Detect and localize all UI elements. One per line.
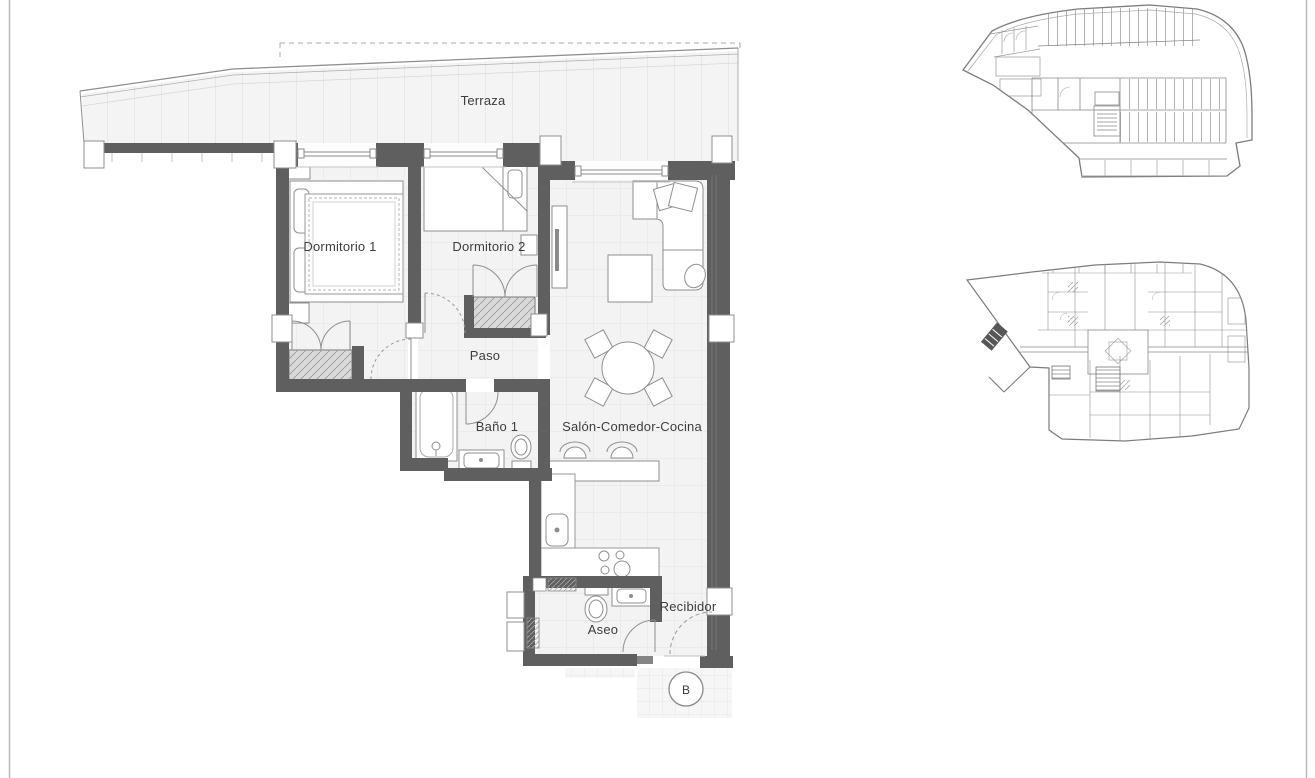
pillar [709,315,734,342]
washbasin-icon [459,450,504,471]
parking-stalls [1040,8,1198,46]
stair-core [1096,367,1120,391]
label-bano-1: Baño 1 [476,419,518,434]
parking-stalls [1120,112,1226,142]
section-marker-b: B [669,672,703,706]
label-terraza: Terraza [461,93,506,108]
shaft [507,622,524,651]
label-salon: Salón-Comedor-Cocina [562,419,702,434]
pillar [531,314,547,336]
shaft [507,592,524,618]
pillar [540,136,561,165]
pillar [274,141,296,168]
site-plan-garage [963,5,1252,177]
bedroom-divider-wall [408,158,421,325]
tv-unit-icon [552,206,567,288]
terrace-railing-ticks [112,153,262,162]
window-salon [572,161,670,182]
label-dormitorio-2: Dormitorio 2 [452,239,525,254]
label-aseo: Aseo [588,622,618,637]
floor-plan-page: B Terraza Dormitorio 1 Dormitorio 2 Paso… [0,0,1315,778]
pillar [272,315,292,342]
entry-landing [565,668,732,718]
site-plan-typical-floor [967,262,1249,441]
washbasin-icon [612,585,651,606]
bathtub-icon [416,385,457,461]
label-paso: Paso [470,348,500,363]
toilet-icon [585,586,608,622]
entry-threshold [637,656,653,664]
west-wall [276,143,289,392]
door-jamb [406,323,423,338]
stairs [1052,366,1070,379]
appliance-hatched [548,578,576,591]
wardrobe-icon [470,297,535,329]
window-dormitorio-1 [295,143,379,167]
floor-plan-canvas: B Terraza Dormitorio 1 Dormitorio 2 Paso… [0,0,1315,778]
parking-stalls [1128,79,1226,109]
single-bed-icon [424,166,527,231]
pillar [712,136,732,163]
window-dormitorio-2 [421,143,506,167]
pillar [84,141,104,168]
section-marker-label: B [682,683,690,697]
label-recibidor: Recibidor [660,599,717,614]
coffee-table-icon [608,255,652,302]
label-dormitorio-1: Dormitorio 1 [303,239,376,254]
appliance [533,578,546,591]
toilet-icon [511,435,531,471]
shaft-hatched [527,618,539,648]
